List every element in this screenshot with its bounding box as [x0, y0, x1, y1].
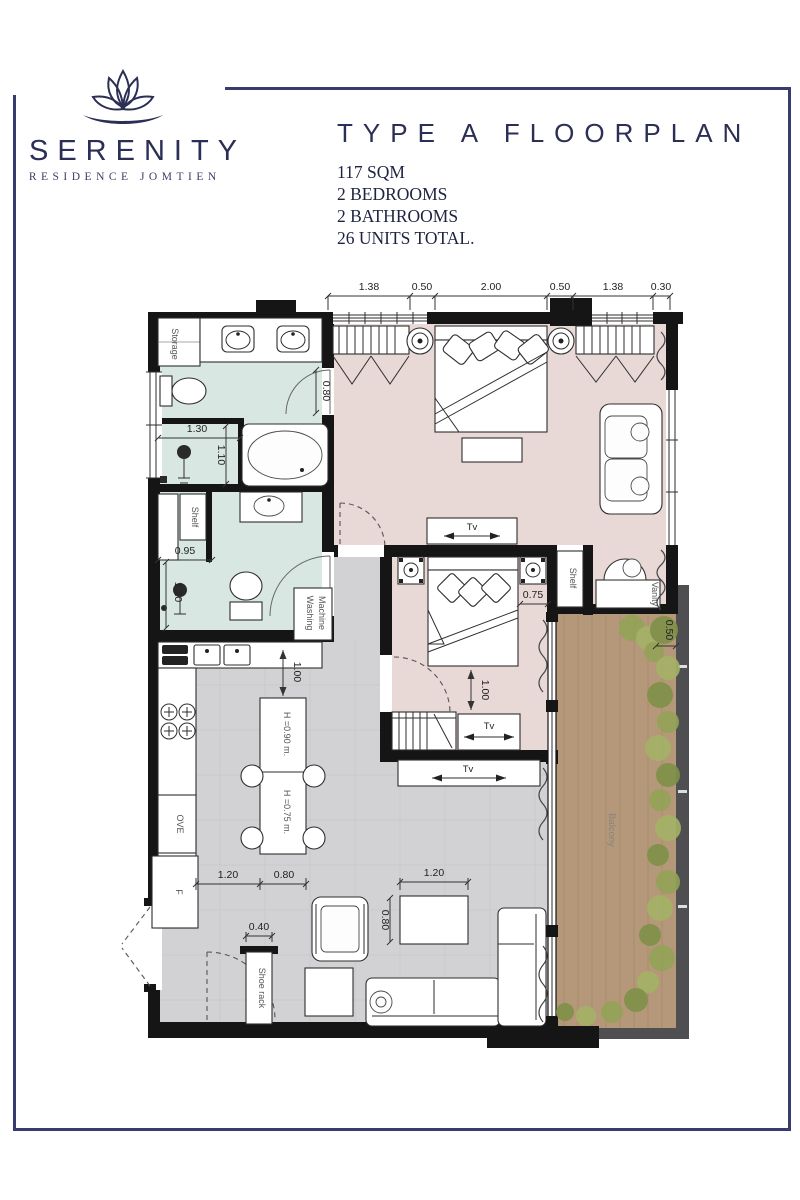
- shelf-master-label: Shelf: [568, 568, 578, 589]
- window-master-right: [666, 390, 678, 545]
- svg-text:0.50: 0.50: [663, 620, 675, 641]
- dim-top-3: 2.00: [481, 281, 502, 293]
- floorplan-page: SERENITY RESIDENCE JOMTIEN TYPE A FLOORP…: [0, 0, 800, 1200]
- storage-closet: Storage: [158, 318, 200, 366]
- vanity-label: Vanity: [650, 582, 660, 607]
- svg-text:1.00: 1.00: [479, 680, 491, 701]
- sink-bath2: [240, 492, 302, 522]
- tv-label-living: Tv: [463, 764, 474, 775]
- nightstand-bed2-right: [520, 557, 546, 584]
- shelf-niche-master: Shelf: [557, 551, 583, 607]
- double-sink-vanity: [200, 318, 322, 362]
- bed-bench: [462, 438, 522, 462]
- svg-text:1.20: 1.20: [172, 582, 184, 603]
- svg-text:1.20: 1.20: [424, 867, 445, 879]
- bed-2: [428, 557, 518, 666]
- washing-label-1: Washing: [305, 596, 315, 631]
- shoe-rack-label: Shoe rack: [257, 968, 267, 1009]
- svg-text:1.00: 1.00: [291, 662, 303, 683]
- bathtub: [242, 424, 328, 486]
- dim-top-2: 0.50: [412, 281, 433, 293]
- svg-text:0.75: 0.75: [523, 589, 544, 601]
- sofa-master: [600, 404, 662, 514]
- svg-text:1.30: 1.30: [187, 423, 208, 435]
- tv-console-living: Tv: [398, 760, 540, 786]
- svg-text:1.20: 1.20: [218, 869, 239, 881]
- window-master-2: [592, 312, 653, 324]
- tv-console-master: Tv: [427, 518, 517, 544]
- svg-text:0.80: 0.80: [274, 869, 295, 881]
- side-table: [305, 968, 353, 1016]
- tv-label-bed2: Tv: [484, 721, 495, 732]
- oven: OVE: [158, 795, 196, 853]
- dim-row-top: 1.38 0.50 2.00 0.50 1.38 0.30: [325, 281, 673, 310]
- svg-text:1.10: 1.10: [215, 445, 227, 466]
- coffee-table: [400, 896, 468, 944]
- svg-text:0.80: 0.80: [320, 381, 332, 402]
- floorplan-drawing: Balcony: [0, 0, 800, 1200]
- storage-label: Storage: [170, 328, 180, 360]
- nightstand-bed2-left: [398, 557, 424, 584]
- washing-label-2: Machine: [317, 596, 327, 630]
- dim-top-1: 1.38: [359, 281, 380, 293]
- armchair: [312, 897, 368, 961]
- toilet-bath2: [230, 572, 262, 620]
- oven-label: OVE: [175, 814, 185, 833]
- tv-label-master: Tv: [467, 522, 478, 533]
- washing-machine: Washing Machine: [294, 588, 332, 640]
- svg-text:0.40: 0.40: [249, 921, 270, 933]
- master-bed: [435, 326, 550, 432]
- nightstand-master-left: [407, 328, 433, 354]
- dim-top-5: 1.38: [603, 281, 624, 293]
- dim-top-6: 0.30: [651, 281, 672, 293]
- fridge-label: F: [174, 889, 184, 895]
- table-height-label: H =0.75 m.: [282, 790, 292, 834]
- counter-height-label: H =0.90 m.: [282, 712, 292, 756]
- balcony: Balcony: [556, 585, 689, 1039]
- window-master-1: [333, 312, 427, 324]
- shelf-bath2-label: Shelf: [190, 507, 200, 528]
- svg-text:0.80: 0.80: [379, 910, 391, 931]
- glass-wall: [546, 612, 558, 1026]
- dim-top-4: 0.50: [550, 281, 571, 293]
- fridge: F: [152, 856, 198, 928]
- wardrobe-bed2: [392, 712, 456, 750]
- svg-text:0.95: 0.95: [175, 545, 196, 557]
- tv-console-bed2: Tv: [458, 714, 520, 750]
- balcony-label: Balcony: [606, 813, 617, 847]
- shoe-rack: Shoe rack: [246, 952, 272, 1024]
- balcony-railing: [676, 585, 689, 1038]
- toilet-master: [160, 376, 206, 406]
- nightstand-master-right: [548, 328, 574, 354]
